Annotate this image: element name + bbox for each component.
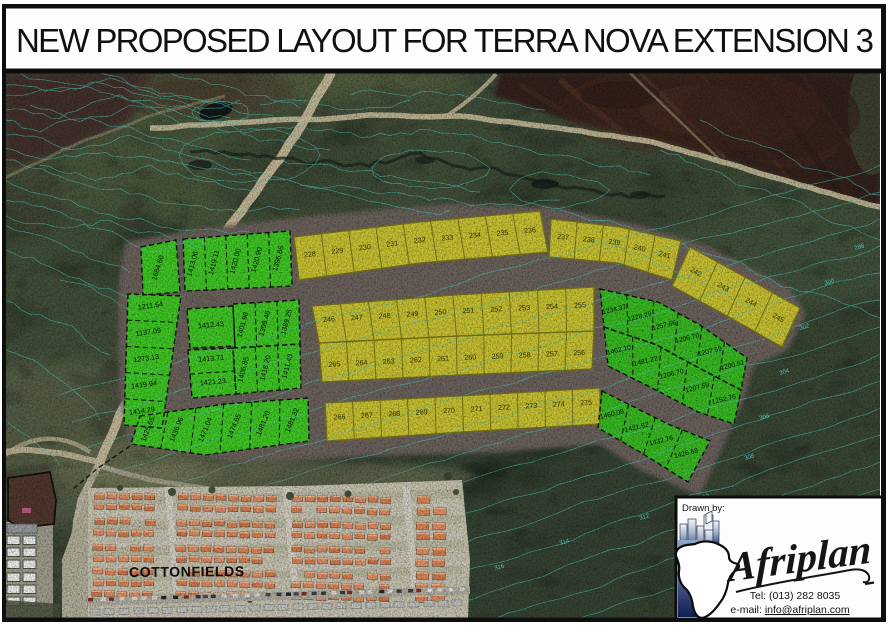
svg-text:233: 233	[441, 233, 454, 243]
svg-text:228: 228	[303, 249, 316, 259]
svg-text:253: 253	[518, 303, 530, 313]
svg-text:266: 266	[333, 412, 345, 422]
svg-text:258: 258	[519, 350, 531, 359]
svg-text:270: 270	[443, 406, 455, 416]
svg-text:232: 232	[413, 235, 426, 245]
svg-text:NEW PROPOSED LAYOUT FOR TERRA: NEW PROPOSED LAYOUT FOR TERRA NOVA EXTEN…	[16, 22, 874, 59]
svg-text:261: 261	[437, 354, 449, 364]
svg-text:252: 252	[490, 304, 502, 314]
svg-text:247: 247	[351, 312, 364, 322]
svg-text:237: 237	[557, 232, 570, 242]
svg-text:265: 265	[328, 359, 340, 369]
svg-text:268: 268	[388, 409, 400, 419]
svg-text:236: 236	[524, 225, 537, 235]
svg-text:271: 271	[470, 404, 482, 414]
svg-text:263: 263	[382, 356, 394, 366]
svg-text:267: 267	[361, 410, 373, 420]
svg-text:255: 255	[574, 300, 586, 310]
svg-text:262: 262	[410, 355, 422, 365]
svg-text:e-mail: info@afriplan.com: e-mail: info@afriplan.com	[730, 604, 849, 616]
svg-text:Tel: (013) 282 8035: Tel: (013) 282 8035	[750, 590, 841, 602]
svg-text:260: 260	[464, 352, 476, 361]
svg-text:235: 235	[496, 228, 509, 238]
svg-text:234: 234	[469, 230, 482, 240]
svg-text:259: 259	[491, 351, 503, 360]
svg-text:238: 238	[582, 234, 595, 244]
svg-text:230: 230	[358, 242, 371, 252]
svg-text:250: 250	[434, 307, 447, 317]
svg-text:273: 273	[525, 401, 537, 411]
svg-text:257: 257	[546, 349, 558, 358]
svg-text:231: 231	[386, 238, 399, 248]
svg-text:248: 248	[378, 311, 391, 321]
svg-text:239: 239	[608, 237, 621, 247]
svg-text:272: 272	[498, 402, 510, 412]
svg-text:264: 264	[355, 358, 367, 368]
svg-text:256: 256	[573, 348, 585, 357]
svg-text:246: 246	[323, 314, 336, 324]
svg-text:274: 274	[553, 399, 565, 409]
svg-text:275: 275	[580, 398, 592, 408]
svg-text:229: 229	[331, 246, 344, 256]
svg-text:249: 249	[406, 309, 419, 319]
svg-text:269: 269	[415, 407, 427, 417]
svg-text:Drawn by:: Drawn by:	[682, 503, 725, 514]
svg-text:COTTONFIELDS: COTTONFIELDS	[129, 563, 245, 580]
svg-text:254: 254	[546, 301, 558, 311]
svg-text:251: 251	[462, 306, 474, 316]
